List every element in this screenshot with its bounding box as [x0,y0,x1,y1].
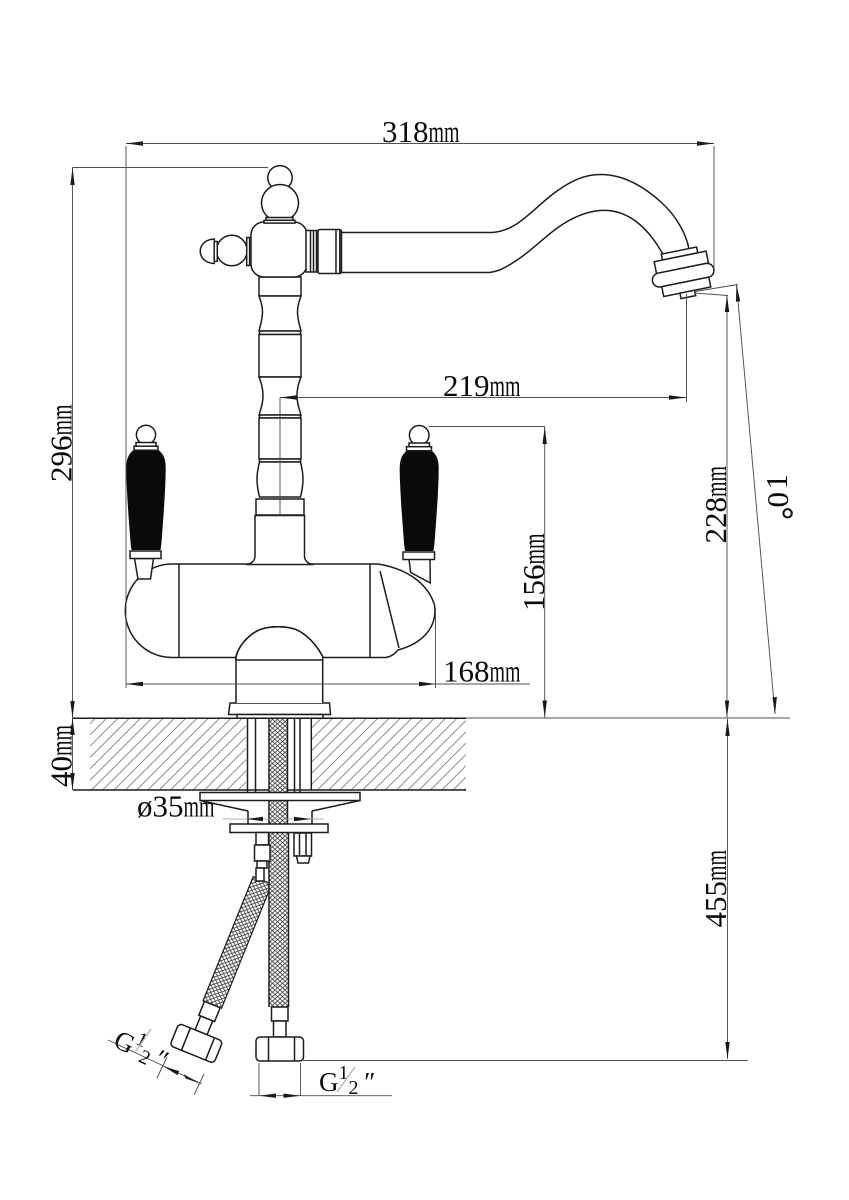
svg-text:228mm: 228mm [698,466,733,544]
svg-text:168mm: 168mm [443,654,521,689]
svg-text:219mm: 219mm [443,368,521,403]
svg-text:156mm: 156mm [516,534,551,612]
svg-text:1: 1 [759,474,794,490]
svg-text:ø35mm: ø35mm [137,789,215,824]
svg-text:455mm: 455mm [698,850,733,928]
svg-text:40mm: 40mm [44,725,79,787]
svg-text:0: 0 [760,492,795,508]
svg-text:318mm: 318mm [382,114,460,149]
svg-text:296mm: 296mm [44,405,79,483]
